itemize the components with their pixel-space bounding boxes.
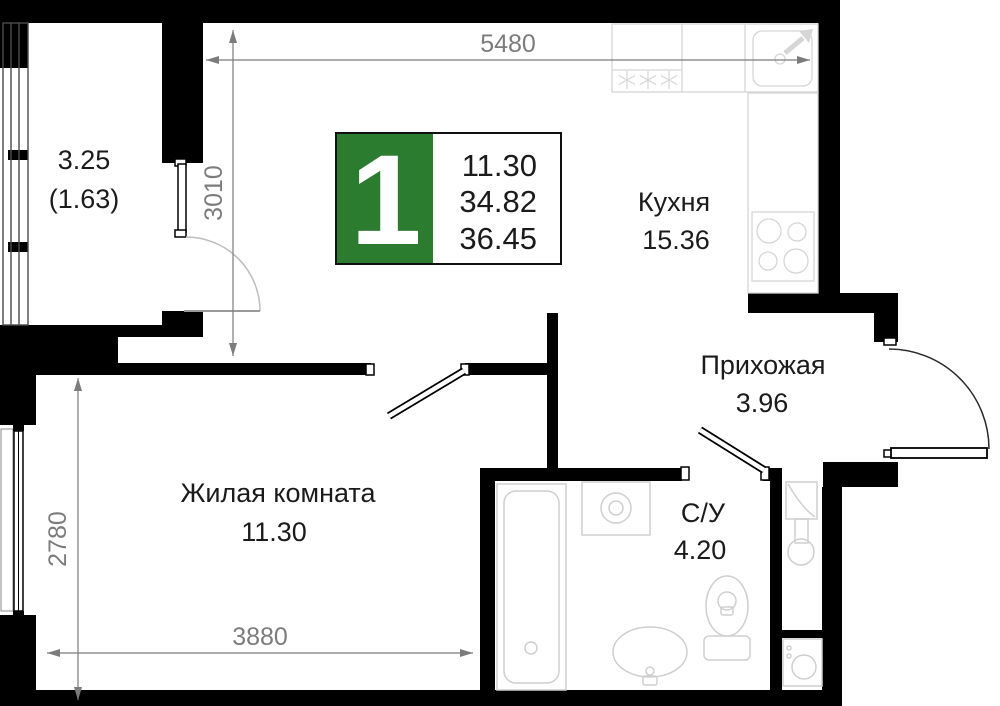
wall-living-top-right	[465, 363, 547, 375]
dimension-balcony-wall: 3010	[200, 30, 237, 356]
wall-below-entrance	[823, 462, 898, 487]
wall-left-upper	[0, 337, 36, 425]
wall-kitchen-right	[818, 23, 840, 293]
entrance-door	[884, 338, 989, 458]
kitchen-sink	[753, 29, 813, 86]
dimension-label-2780: 2780	[44, 511, 72, 567]
wall-kitchen-bottom	[748, 293, 898, 313]
balcony-area: 3.25	[58, 145, 111, 175]
dimension-living-width: 3880	[47, 623, 473, 657]
wall-right-lower	[822, 487, 842, 706]
stove	[752, 212, 814, 281]
dimension-label-5480: 5480	[480, 30, 536, 58]
wall-bottom	[0, 690, 842, 706]
hob-symbol	[619, 71, 677, 89]
wall-bathroom-top	[485, 468, 682, 481]
washing-machine	[582, 482, 650, 535]
dimension-kitchen-width: 5480	[206, 30, 810, 64]
balcony-glazing	[3, 23, 28, 325]
wall-niche-divider	[782, 630, 822, 638]
dimension-living-depth: 2780	[44, 378, 82, 700]
kitchen-area: 15.36	[642, 225, 710, 255]
dimension-label-3880: 3880	[232, 623, 288, 651]
wall-top	[0, 0, 840, 23]
living-room-window	[1, 424, 24, 618]
toilet	[704, 576, 750, 660]
kitchen-name: Кухня	[638, 187, 710, 217]
utility-washing-machine	[783, 639, 822, 686]
badge-area-wo-balcony: 34.82	[459, 184, 537, 219]
wall-niche-left	[770, 481, 782, 706]
hallway-name: Прихожая	[700, 350, 825, 380]
info-badge: 1 11.30 34.82 36.45	[336, 129, 561, 272]
badge-total-area: 36.45	[459, 221, 537, 256]
wall-balcony-corner	[0, 23, 28, 68]
floor-plan: 5480 3010 2780 3880 3.25 (1.63) Кухня 15…	[0, 0, 1000, 706]
badge-living-area: 11.30	[462, 148, 537, 183]
water-heater	[786, 482, 817, 565]
living-room-area: 11.30	[241, 517, 307, 547]
living-room-name: Жилая комната	[180, 478, 376, 508]
bathroom-sink	[613, 627, 687, 685]
wall-living-top-left	[0, 363, 371, 375]
balcony-area-reduced: (1.63)	[49, 184, 120, 214]
hallway-area: 3.96	[736, 388, 789, 418]
bathroom-door	[681, 430, 769, 480]
entrance-door-leaf	[891, 448, 987, 458]
bathroom-name: С/У	[681, 498, 726, 528]
dimension-label-3010: 3010	[200, 165, 228, 221]
wall-balcony-divider-upper	[162, 23, 203, 163]
wall-bathroom-left	[480, 468, 495, 706]
wall-balcony-divider-lower	[162, 311, 203, 337]
rooms-count: 1	[350, 129, 421, 272]
wall-stub	[547, 313, 558, 481]
bathtub	[497, 484, 566, 690]
entrance-door-arc	[889, 349, 989, 449]
living-room-door	[366, 364, 469, 416]
bathroom-area: 4.20	[674, 535, 727, 565]
